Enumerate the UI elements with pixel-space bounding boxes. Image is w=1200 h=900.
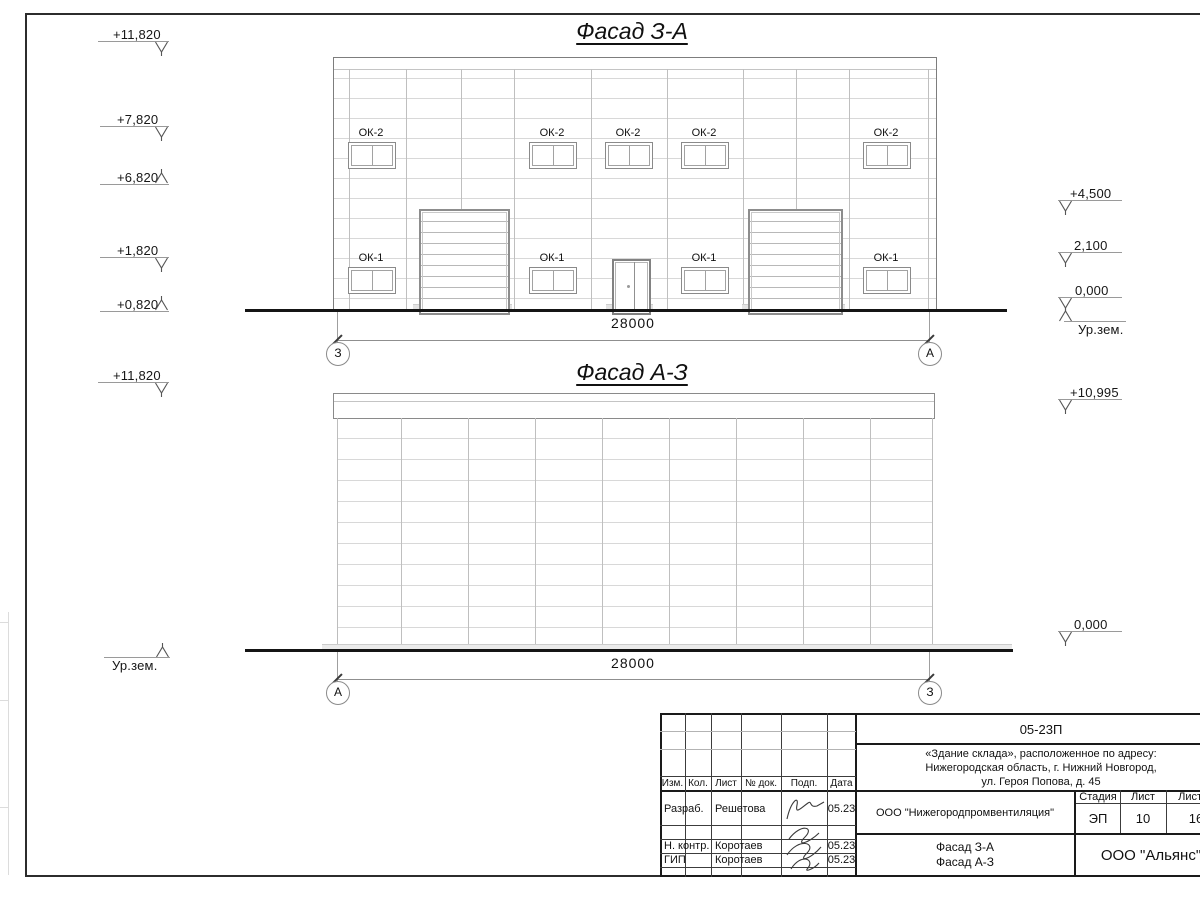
level-value: +7,820 — [117, 112, 158, 127]
sheet-frame-left — [25, 13, 27, 877]
level-arrow-down-icon — [1058, 631, 1073, 646]
window-label: ОК-2 — [348, 127, 394, 139]
level-shelf — [100, 311, 169, 312]
window-label: ОК-2 — [605, 127, 651, 139]
design-org: ООО "Нижегородпромвентиляция" — [856, 792, 1074, 833]
window-label: ОК-1 — [681, 252, 727, 264]
row-role: ГИП — [664, 853, 711, 867]
parapet-band — [333, 393, 935, 419]
level-mark: +0,820 — [100, 296, 172, 330]
panel-joint — [401, 418, 402, 649]
level-value: 0,000 — [1075, 283, 1109, 298]
level-value: +0,820 — [117, 297, 158, 312]
axis-bubble: А — [918, 342, 942, 366]
facade2-elevation — [333, 393, 935, 651]
level-mark: +11,820 — [98, 27, 170, 61]
door-leaf-split — [634, 262, 635, 312]
dimension-line — [337, 679, 929, 680]
title-block: Изм. Кол. Лист № док. Подп. Дата Разраб.… — [660, 713, 1200, 877]
axis-bubble: З — [918, 681, 942, 705]
level-arrow-down-icon — [154, 382, 169, 397]
level-value: +11,820 — [113, 27, 161, 42]
level-mark: 2,100 — [1058, 238, 1130, 272]
panel-joint — [667, 69, 668, 311]
level-value: +11,820 — [113, 368, 161, 383]
drawing-title-line: Фасад А-З — [936, 855, 994, 870]
axis-bubble: З — [326, 342, 350, 366]
dimension-label: 28000 — [337, 655, 929, 671]
panel-joint — [669, 418, 670, 649]
level-value: Ур.зем. — [112, 658, 158, 673]
panel-joint — [736, 418, 737, 649]
sheet-label: Лист — [1120, 791, 1166, 803]
level-mark: 0,000 — [1058, 617, 1130, 651]
level-value: +10,995 — [1070, 385, 1119, 400]
level-value: 2,100 — [1074, 238, 1108, 253]
level-arrow-up-icon — [155, 643, 170, 658]
sheet-frame-top — [25, 13, 1200, 15]
col-header-izm: Изм. — [660, 776, 685, 790]
drawing-title-line: Фасад З-А — [936, 840, 994, 855]
row-name: Решетова — [715, 792, 781, 825]
facade1-elevation: ОК-2 ОК-2 ОК-2 ОК-2 ОК-2 ОК-1 ОК-1 ОК-1 … — [333, 57, 937, 311]
window-label: ОК-2 — [529, 127, 575, 139]
sectional-gate-left — [419, 209, 510, 315]
level-value: +4,500 — [1070, 186, 1111, 201]
signature — [781, 821, 827, 875]
axis-bubble: А — [326, 681, 350, 705]
window-ok1 — [348, 267, 396, 294]
sectional-gate-right — [748, 209, 843, 315]
door-handle — [627, 285, 630, 288]
level-mark: +6,820 — [100, 169, 172, 203]
door-frame — [615, 262, 648, 312]
ground-level-mark: Ур.зем. — [104, 643, 176, 677]
level-arrow-down-icon — [1058, 399, 1073, 414]
company-name: ООО "Альянс" — [1076, 835, 1200, 875]
panel-joint — [406, 69, 407, 311]
panel-joint — [870, 418, 871, 649]
project-line: ул. Героя Попова, д. 45 — [981, 775, 1100, 789]
ground-level-mark: Ур.зем. — [1058, 307, 1130, 341]
facade1-title: Фасад З-А — [482, 18, 782, 45]
level-value: +6,820 — [117, 170, 158, 185]
row-role: Н. контр. — [664, 839, 711, 853]
col-header-podp: Подп. — [781, 776, 827, 790]
col-header-data: Дата — [827, 776, 856, 790]
window-label: ОК-2 — [863, 127, 909, 139]
sheets-total-label: Листов — [1166, 791, 1200, 803]
level-mark: +10,995 — [1058, 385, 1130, 419]
sheet-number: 10 — [1120, 804, 1166, 833]
row-role: Разраб. — [664, 792, 711, 825]
window-ok1 — [863, 267, 911, 294]
col-header-doc: № док. — [741, 776, 781, 790]
panel-joint — [602, 418, 603, 649]
level-mark: +1,820 — [100, 243, 172, 277]
ground-line — [245, 309, 1007, 312]
level-arrow-down-icon — [1058, 200, 1073, 215]
panel-joint — [535, 418, 536, 649]
level-value: Ур.зем. — [1078, 322, 1124, 337]
col-header-list: Лист — [711, 776, 741, 790]
window-ok2 — [681, 142, 729, 169]
parapet-line — [334, 401, 934, 402]
facade2-title: Фасад А-З — [482, 359, 782, 386]
level-mark: +4,500 — [1058, 186, 1130, 220]
sheets-total: 16 — [1166, 804, 1200, 833]
panel-joint — [743, 69, 744, 311]
level-mark: +7,820 — [100, 112, 172, 146]
window-ok1 — [681, 267, 729, 294]
panel-joint — [468, 418, 469, 649]
row-date: 05.23 — [827, 792, 856, 825]
panel-joint — [514, 69, 515, 311]
stage-value: ЭП — [1076, 804, 1120, 833]
dimension-label: 28000 — [337, 315, 929, 331]
level-shelf — [100, 184, 169, 185]
window-ok1 — [529, 267, 577, 294]
drawing-sheet: { "facade1": { "title": "Фасад З-А", "di… — [0, 0, 1200, 900]
margin-stamp-line — [0, 700, 8, 701]
entrance-door — [612, 259, 651, 315]
window-ok2 — [863, 142, 911, 169]
window-label: ОК-2 — [681, 127, 727, 139]
window-ok2 — [348, 142, 396, 169]
col-header-kol: Кол. — [685, 776, 711, 790]
document-code: 05-23П — [856, 715, 1200, 743]
row-date: 05.23 — [827, 839, 856, 853]
dimension-line — [337, 340, 929, 341]
row-date: 05.23 — [827, 853, 856, 867]
stage-label: Стадия — [1076, 791, 1120, 803]
panel-joint — [591, 69, 592, 311]
row-name: Коротаев — [715, 853, 781, 867]
window-label: ОК-1 — [863, 252, 909, 264]
window-label: ОК-1 — [348, 252, 394, 264]
level-arrow-down-icon — [154, 257, 169, 272]
margin-stamp-line — [0, 622, 8, 623]
level-arrow-down-icon — [1058, 252, 1073, 267]
project-line: Нижегородская область, г. Нижний Новгоро… — [925, 761, 1156, 775]
level-arrow-up-icon — [154, 169, 169, 184]
panel-field — [337, 418, 933, 649]
level-value: +1,820 — [117, 243, 158, 258]
window-ok2 — [529, 142, 577, 169]
margin-stamp-line — [0, 807, 8, 808]
window-ok2 — [605, 142, 653, 169]
level-mark: +11,820 — [98, 368, 170, 402]
ground-line — [245, 649, 1013, 652]
panel-joint — [849, 69, 850, 311]
level-arrow-up-icon — [154, 296, 169, 311]
level-arrow-down-icon — [154, 126, 169, 141]
level-value: 0,000 — [1074, 617, 1108, 632]
level-arrow-up-icon — [1058, 307, 1073, 322]
row-name: Коротаев — [715, 839, 781, 853]
drawing-title: Фасад З-А Фасад А-З — [856, 835, 1074, 875]
project-line: «Здание склада», расположенное по адресу… — [925, 747, 1156, 761]
parapet-line — [334, 69, 936, 70]
panel-joint — [803, 418, 804, 649]
panel-joint — [928, 69, 929, 311]
window-label: ОК-1 — [529, 252, 575, 264]
project-description: «Здание склада», расположенное по адресу… — [856, 745, 1200, 790]
margin-stamp-line — [8, 612, 9, 875]
level-arrow-down-icon — [154, 41, 169, 56]
